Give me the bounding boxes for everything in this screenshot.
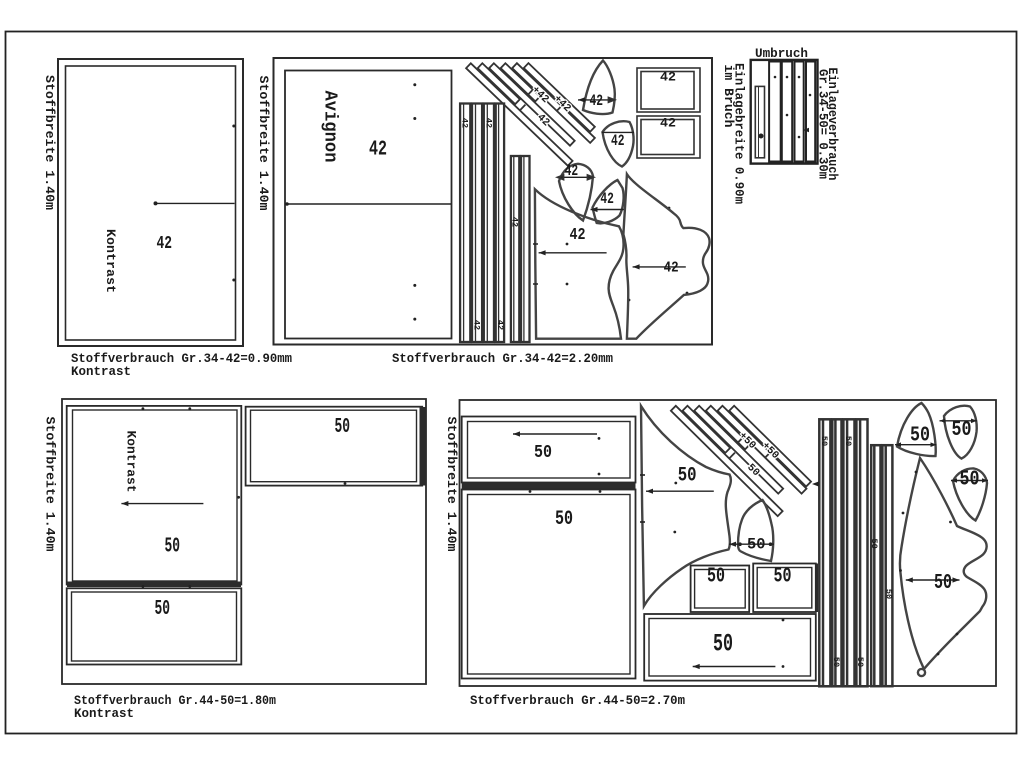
svg-text:42: 42	[660, 70, 676, 84]
svg-text:42: 42	[570, 226, 586, 245]
svg-text:im Bruch: im Bruch	[721, 65, 735, 128]
svg-text:50: 50	[869, 538, 879, 548]
svg-text:Kontrast: Kontrast	[74, 707, 134, 721]
svg-text:42: 42	[590, 92, 604, 110]
svg-text:Stoffbreite 1.40m: Stoffbreite 1.40m	[444, 417, 459, 552]
svg-text:42: 42	[369, 138, 387, 161]
svg-text:50: 50	[335, 416, 351, 439]
svg-text:42: 42	[460, 118, 470, 128]
svg-text:42: 42	[664, 259, 679, 276]
svg-text:42: 42	[565, 162, 579, 180]
svg-text:Avignon: Avignon	[319, 91, 339, 163]
svg-text:50: 50	[831, 657, 841, 667]
svg-text:50: 50	[678, 464, 697, 487]
svg-text:42: 42	[157, 234, 173, 254]
svg-text:50: 50	[555, 508, 573, 531]
svg-text:42: 42	[472, 320, 482, 330]
svg-text:Kontrast: Kontrast	[103, 229, 118, 293]
svg-text:42: 42	[660, 117, 676, 131]
svg-text:42: 42	[611, 132, 625, 150]
svg-text:50: 50	[534, 442, 552, 463]
svg-text:50: 50	[747, 536, 766, 554]
svg-text:Stoffbreite 1.40m: Stoffbreite 1.40m	[42, 75, 57, 210]
svg-text:50: 50	[713, 629, 733, 658]
svg-text:Stoffverbrauch Gr.34-42=2.20mm: Stoffverbrauch Gr.34-42=2.20mm	[392, 352, 613, 366]
svg-text:Stoffverbrauch Gr.34-42=0.90mm: Stoffverbrauch Gr.34-42=0.90mm	[71, 352, 292, 366]
svg-text:50: 50	[707, 565, 725, 589]
svg-text:42: 42	[484, 118, 494, 128]
svg-text:Stoffverbrauch Gr.44-50=2.70m: Stoffverbrauch Gr.44-50=2.70m	[470, 694, 685, 708]
svg-text:50: 50	[774, 565, 792, 589]
svg-text:Stoffverbrauch Gr.44-50=1.80m: Stoffverbrauch Gr.44-50=1.80m	[74, 694, 276, 708]
svg-text:50: 50	[884, 589, 894, 599]
svg-text:50: 50	[855, 657, 865, 667]
svg-text:Gr.34-50= 0.30m: Gr.34-50= 0.30m	[816, 69, 830, 179]
svg-text:50: 50	[934, 572, 952, 595]
svg-text:50: 50	[952, 419, 972, 442]
svg-text:50: 50	[960, 469, 980, 492]
svg-text:42: 42	[495, 320, 505, 330]
svg-text:50: 50	[165, 535, 181, 558]
svg-text:Stoffbreite 1.40m: Stoffbreite 1.40m	[43, 417, 58, 552]
svg-text:Kontrast: Kontrast	[124, 431, 139, 493]
svg-text:50: 50	[819, 436, 829, 446]
svg-text:42: 42	[600, 190, 614, 208]
svg-text:42: 42	[510, 217, 520, 227]
svg-text:50: 50	[843, 436, 853, 446]
svg-text:50: 50	[910, 425, 930, 448]
svg-text:Kontrast: Kontrast	[71, 365, 131, 379]
svg-text:Stoffbreite 1.40m: Stoffbreite 1.40m	[256, 76, 271, 211]
svg-text:50: 50	[155, 598, 171, 621]
